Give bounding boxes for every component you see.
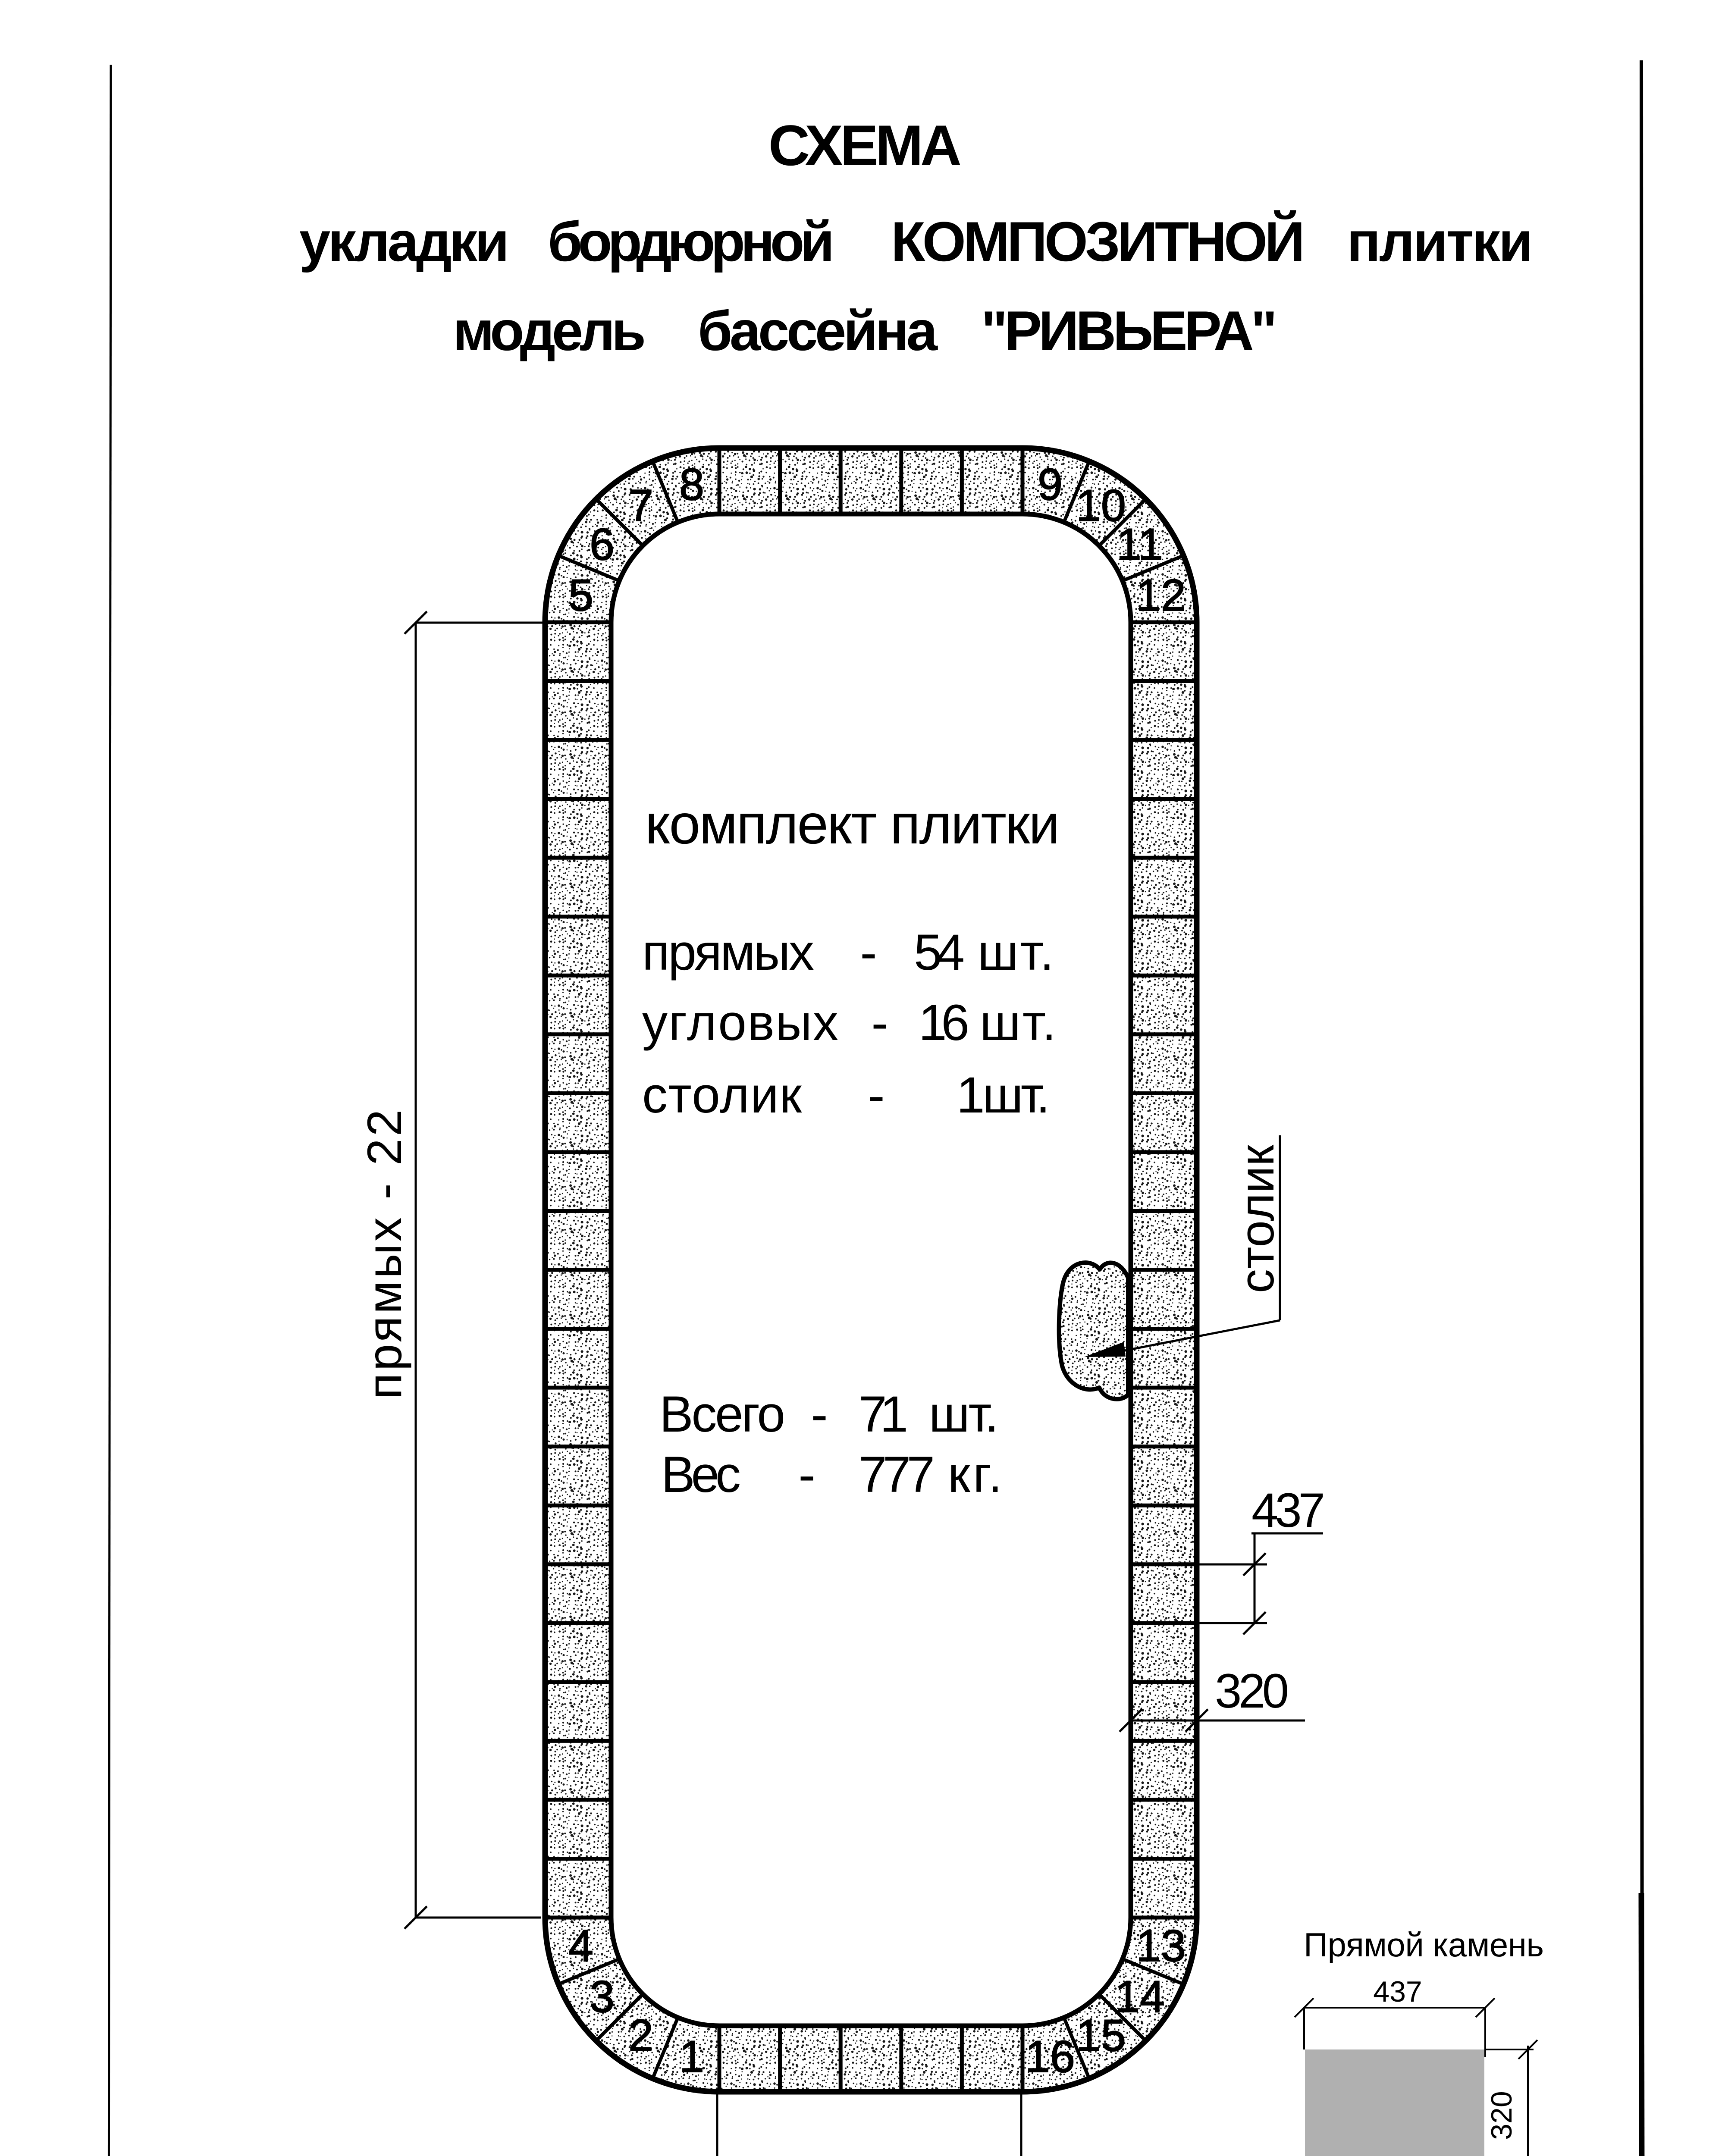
svg-text:шт.: шт. xyxy=(929,1386,999,1443)
svg-text:-: - xyxy=(871,994,888,1051)
svg-text:7: 7 xyxy=(628,481,653,531)
svg-text:11: 11 xyxy=(1117,520,1163,570)
svg-text:-: - xyxy=(868,1067,884,1124)
svg-text:шт.: шт. xyxy=(980,994,1056,1051)
svg-text:модель: модель xyxy=(453,299,646,362)
svg-text:столик: столик xyxy=(642,1067,802,1124)
svg-text:кг.: кг. xyxy=(948,1446,1002,1503)
svg-text:320: 320 xyxy=(1215,1664,1289,1718)
svg-text:-: - xyxy=(811,1386,828,1443)
svg-text:бассейна: бассейна xyxy=(698,299,938,362)
svg-text:777: 777 xyxy=(859,1446,935,1503)
svg-text:6: 6 xyxy=(590,520,615,570)
svg-text:4: 4 xyxy=(568,1921,593,1971)
svg-text:8: 8 xyxy=(679,460,704,510)
svg-text:3: 3 xyxy=(590,1972,615,2022)
svg-text:54: 54 xyxy=(914,924,965,981)
svg-text:437: 437 xyxy=(1373,1975,1422,2008)
svg-text:шт.: шт. xyxy=(978,924,1054,981)
svg-text:15: 15 xyxy=(1076,2011,1126,2061)
svg-text:прямых: прямых xyxy=(642,924,814,981)
svg-text:1: 1 xyxy=(679,2032,704,2082)
svg-text:"РИВЬЕРА": "РИВЬЕРА" xyxy=(981,299,1277,362)
svg-text:плитки: плитки xyxy=(1347,210,1533,273)
svg-text:-: - xyxy=(860,924,877,981)
svg-text:Прямой камень: Прямой камень xyxy=(1304,1926,1544,1964)
svg-text:437: 437 xyxy=(1251,1483,1325,1537)
svg-text:прямых - 5: прямых - 5 xyxy=(748,2146,986,2156)
svg-text:1шт.: 1шт. xyxy=(957,1067,1050,1124)
svg-text:2: 2 xyxy=(628,2011,653,2061)
svg-text:16: 16 xyxy=(919,994,969,1051)
svg-text:9: 9 xyxy=(1038,460,1063,510)
svg-text:бордюрной: бордюрной xyxy=(548,210,834,273)
svg-text:5: 5 xyxy=(568,570,593,620)
svg-text:укладки: укладки xyxy=(299,210,509,273)
svg-text:-: - xyxy=(798,1446,815,1503)
svg-text:комплект плитки: комплект плитки xyxy=(645,793,1060,856)
svg-text:Вес: Вес xyxy=(661,1446,741,1503)
svg-text:столик: столик xyxy=(1230,1144,1284,1293)
svg-text:71: 71 xyxy=(859,1386,908,1443)
svg-text:угловых: угловых xyxy=(642,994,838,1051)
svg-text:320: 320 xyxy=(1485,2091,1518,2140)
svg-text:16: 16 xyxy=(1025,2032,1075,2082)
svg-text:12: 12 xyxy=(1136,570,1186,620)
svg-text:Всего: Всего xyxy=(659,1386,785,1443)
svg-text:13: 13 xyxy=(1136,1921,1186,1971)
svg-text:прямых - 22: прямых - 22 xyxy=(358,1109,411,1399)
svg-text:КОМПОЗИТНОЙ: КОМПОЗИТНОЙ xyxy=(891,210,1305,273)
svg-text:СХЕМА: СХЕМА xyxy=(768,114,962,178)
